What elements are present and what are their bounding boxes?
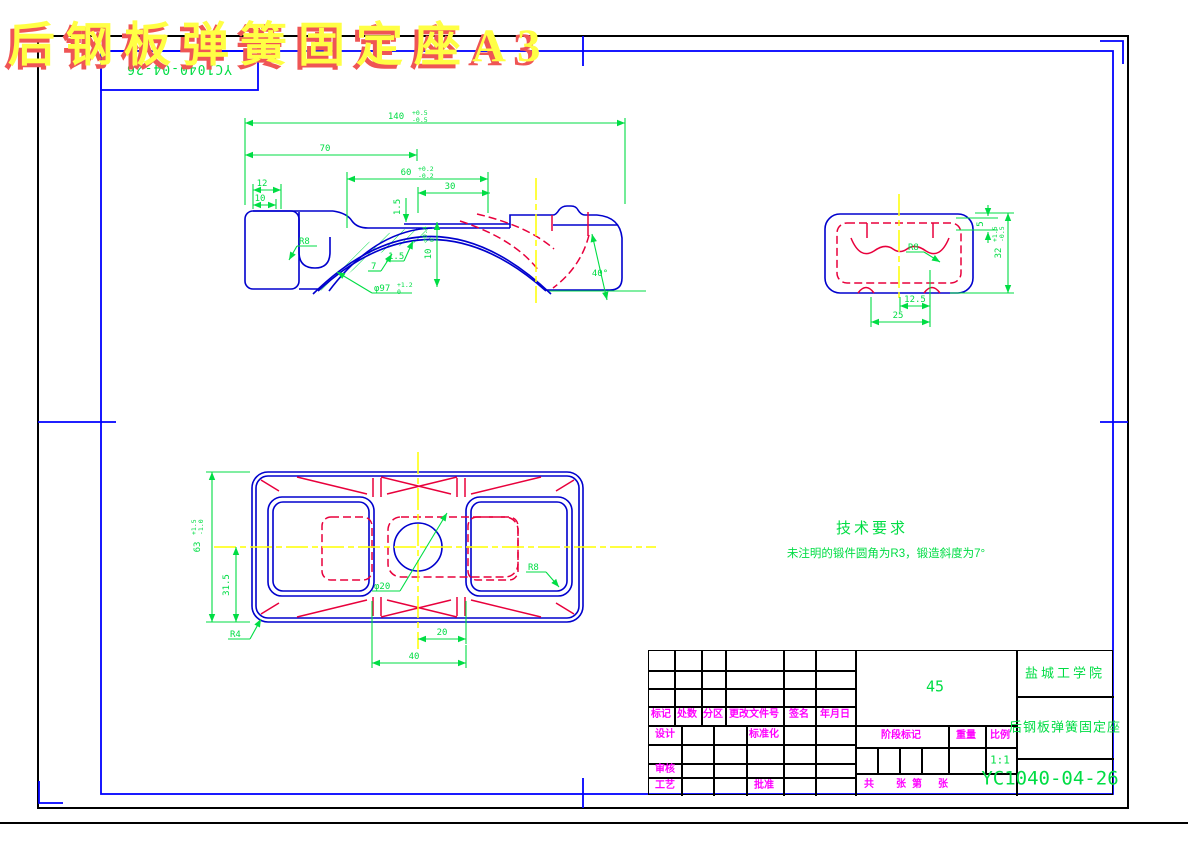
- tb-label-approve: 批准: [754, 781, 774, 791]
- front-dimensions: 140 +0.5 -0.5 70 60 +0.2 -0.2 30 12 10 1…: [245, 109, 646, 300]
- tb-line: [649, 777, 855, 779]
- tb-label-sheet-gong: 共: [864, 780, 874, 790]
- tb-line: [1016, 758, 1114, 760]
- tb-label-scale: 比例: [990, 731, 1010, 741]
- dim-5: 5: [976, 221, 986, 226]
- side-dimensions: 5 32 +1.5 -0.5 R8 12.5 25: [871, 205, 1014, 327]
- plan-view: 63 +1.5 -1.0 31.5 R4 φ20 20 40 R8: [190, 452, 656, 668]
- tb-label-sheet-zhang1: 张: [896, 780, 906, 790]
- tb-line: [877, 747, 879, 773]
- drawing-title: 后钢板弹簧固定座A3: [8, 6, 551, 75]
- tb-label-process: 工艺: [655, 781, 675, 791]
- tb-line: [649, 725, 1016, 727]
- dim-63-tol-dn: -1.0: [197, 519, 205, 535]
- tb-line: [948, 725, 950, 773]
- front-left-section-hatch: [245, 211, 299, 289]
- dim-dia-97-tol-dn: 0: [397, 288, 401, 296]
- dim-step-1-5: 1.5: [393, 199, 403, 215]
- tb-line: [713, 725, 715, 796]
- tb-line: [649, 744, 855, 746]
- tech-requirements-note: 未注明的锻件圆角为R3，锻造斜度为7°: [787, 546, 985, 560]
- dim-140: 140: [388, 112, 404, 122]
- tb-drawing-no: YC1040-04-26: [981, 770, 1118, 789]
- tb-part-name: 后钢板弹簧固定座: [1009, 721, 1121, 734]
- dim-60-tol-dn: -0.2: [418, 172, 434, 180]
- tb-label-sign: 签名: [789, 710, 809, 720]
- tb-label-standardize: 标准化: [749, 730, 779, 740]
- dim-60: 60: [401, 168, 412, 178]
- dim-20: 20: [437, 628, 448, 638]
- dim-140-tol-dn: -0.5: [412, 116, 428, 124]
- drawing-sheet: YC1040-04-26: [0, 0, 1188, 841]
- tb-line: [649, 670, 855, 672]
- tb-line: [1016, 696, 1114, 698]
- tb-label-weight: 重量: [956, 731, 976, 741]
- corner-mark-bottom-left: [39, 781, 63, 803]
- title-block: 标记 处数 分区 更改文件号 签名 年月日 设计 标准化 审核 工艺 批准 阶段…: [648, 650, 1113, 795]
- tb-line: [783, 651, 785, 796]
- tb-label-design: 设计: [655, 730, 675, 740]
- tb-label-stage-mark: 阶段标记: [881, 731, 921, 741]
- tech-requirements-heading: 技术要求: [836, 520, 908, 537]
- tb-material: 45: [926, 680, 944, 695]
- dim-30: 30: [445, 182, 456, 192]
- tb-line: [855, 747, 1016, 749]
- tb-line: [815, 651, 817, 796]
- tech-requirements: 技术要求 未注明的锻件圆角为R3，锻造斜度为7°: [787, 520, 985, 560]
- tb-line: [899, 747, 901, 773]
- tb-line: [985, 725, 987, 773]
- corner-mark-top-right: [1100, 41, 1123, 64]
- tb-line: [746, 725, 748, 796]
- dim-10: 10: [255, 194, 266, 204]
- tb-label-doc-no: 更改文件号: [729, 710, 779, 720]
- dim-angle-40: 40°: [592, 269, 608, 279]
- dim-depth-10-tol-dn: 0: [428, 238, 436, 242]
- side-view: 5 32 +1.5 -0.5 R8 12.5 25: [825, 194, 1014, 327]
- dim-25: 25: [893, 311, 904, 321]
- dim-32: 32: [994, 248, 1004, 259]
- tb-label-check: 审核: [655, 765, 675, 775]
- front-view: 140 +0.5 -0.5 70 60 +0.2 -0.2 30 12 10 1…: [245, 109, 646, 303]
- dim-depth-10: 10: [424, 249, 434, 260]
- tb-school: 盐城工学院: [1025, 667, 1105, 680]
- dim-40: 40: [409, 652, 420, 662]
- tb-label-count: 处数: [677, 710, 697, 720]
- dim-32-tol-dn: -0.5: [998, 226, 1006, 242]
- tb-line: [649, 706, 855, 708]
- dim-12-5: 12.5: [904, 295, 926, 305]
- tb-label-sheet-di: 第: [912, 780, 922, 790]
- dim-12: 12: [257, 179, 268, 189]
- tb-label-date: 年月日: [820, 710, 850, 720]
- tb-label-mark: 标记: [651, 710, 671, 720]
- tb-label-sheet-zhang2: 张: [938, 780, 948, 790]
- dim-31-5: 31.5: [222, 574, 232, 596]
- dim-63: 63: [193, 542, 203, 553]
- tb-line: [649, 763, 855, 765]
- tb-line: [921, 747, 923, 773]
- tb-label-zone: 分区: [703, 710, 723, 720]
- tb-line: [649, 688, 855, 690]
- tb-scale-value: 1:1: [990, 755, 1010, 766]
- tb-line: [681, 725, 683, 796]
- dim-70: 70: [320, 144, 331, 154]
